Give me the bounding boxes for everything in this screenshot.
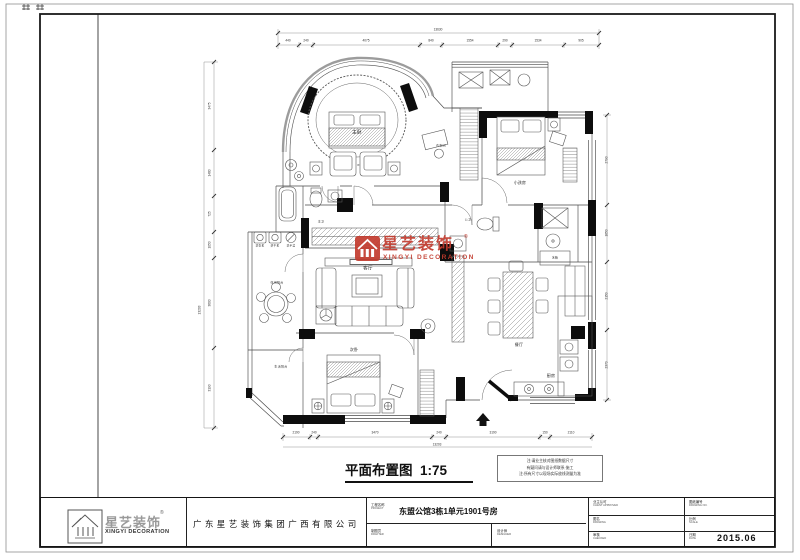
caption-title: 平面布置图: [345, 463, 413, 478]
field-sublabel: DRAWING NO.: [689, 504, 707, 507]
dim-label: 3600: [208, 299, 211, 306]
dim-label: 4075: [362, 39, 369, 42]
dim-label: 905: [578, 39, 583, 42]
field-sublabel: PROJECT: [371, 507, 385, 510]
field-sublabel: DRAFTER: [371, 533, 384, 536]
room-label-guest-bath: 公卫: [465, 219, 472, 222]
date-value: 2015.06: [717, 533, 757, 543]
dim-label: 1650: [605, 229, 608, 236]
title-block-divider: [366, 498, 367, 546]
room-label-kids: 小孩房: [514, 182, 526, 186]
dim-label: 3475: [208, 102, 211, 109]
room-label-kitchen: 厨房: [547, 374, 556, 378]
field-sublabel: SCALE: [689, 521, 698, 524]
drawing-sheet: 主卧 衣帽间 小孩房 主卫 公卫 客厅 餐厅 厨房 次卧 休闲阳台 生活阳台 洗…: [0, 0, 800, 560]
notes-box: 注:请业主核对图纸数据尺寸 有疑问请与设计师联系·施工 注:所有尺寸以现场实际放…: [497, 455, 603, 482]
field-sublabel: DESIGNER: [497, 533, 511, 536]
dim-total-top: 13630: [434, 28, 443, 31]
field-scale: 比例 SCALE: [689, 517, 698, 524]
dim-label: 3190: [208, 384, 211, 391]
field-drawing-no: 图纸编号 DRAWING NO.: [689, 500, 707, 507]
room-label-balcony-leisure: 休闲阳台: [270, 282, 283, 285]
dim-label: 1050: [208, 241, 211, 248]
dim-label: 3190: [489, 431, 496, 434]
dim-label: 2110: [568, 431, 575, 434]
dim-total-left: 13203: [198, 306, 201, 315]
dim-label: 2370: [605, 361, 608, 368]
room-label-living: 客厅: [363, 267, 373, 272]
title-block-divider: [588, 531, 774, 532]
field-client: 业主认可 CLIENT APPROVED: [593, 500, 618, 507]
title-block-divider: [588, 515, 774, 516]
field-sublabel: DRAWING: [593, 521, 606, 524]
note-line-2: 有疑问请与设计师联系·施工: [498, 465, 602, 472]
logo-text-en: XINGYI DECORATION: [105, 529, 170, 535]
field-checker: 审核 CHECKED: [593, 533, 606, 540]
field-sublabel: CHECKED: [593, 537, 606, 540]
dim-label: 240: [303, 39, 308, 42]
dim-label: 2190: [292, 431, 299, 434]
room-label-second: 次卧: [350, 348, 359, 352]
field-drawing-name: 图名 DRAWING: [593, 517, 606, 524]
dim-label: 240: [436, 431, 441, 434]
dim-label: 240: [311, 431, 316, 434]
label-washer: 洗衣机: [256, 246, 265, 249]
title-block-divider: [588, 498, 589, 546]
room-label-master: 主卧: [352, 131, 362, 136]
label-basin: 洗手盆: [287, 246, 296, 249]
dim-label: 1534: [534, 39, 541, 42]
dim-label: 2790: [605, 156, 608, 163]
label-dryer: 烘干机: [271, 246, 280, 249]
registered-mark-icon: ®: [464, 234, 468, 240]
field-project: 工程名称 PROJECT: [371, 503, 385, 510]
field-drafter: 制图员 DRAFTER: [371, 529, 384, 536]
drawing-caption: 平面布置图 1:75: [345, 459, 473, 483]
caption-scale: 1:75: [420, 463, 447, 478]
label-fridge: 冰箱: [552, 257, 558, 260]
dim-total-bottom: 13203: [433, 443, 442, 446]
company-name: 广东星艺装饰集团广西有限公司: [193, 518, 360, 530]
watermark-company-en: XINGYI DECORATION: [383, 255, 475, 262]
dim-label: 150: [542, 431, 547, 434]
dim-label: 1554: [466, 39, 473, 42]
title-block-divider: [186, 498, 187, 546]
dim-label: 725: [208, 211, 211, 216]
dim-label: 440: [285, 39, 290, 42]
room-label-master-bath: 主卫: [318, 221, 325, 224]
field-sublabel: DATE: [689, 537, 696, 540]
field-designer: 设计师 DESIGNER: [497, 529, 511, 536]
registered-mark-icon: ®: [160, 510, 164, 516]
caption-underline: [345, 481, 473, 482]
field-sublabel: CLIENT APPROVED: [593, 504, 618, 507]
note-line-1: 注:请业主核对图纸数据尺寸: [498, 458, 602, 465]
dim-label: 840: [428, 39, 433, 42]
dim-label: 2150: [605, 292, 608, 299]
room-label-cloak: 衣帽间: [436, 145, 446, 148]
title-block: 星艺装饰 ® XINGYI DECORATION 广东星艺装饰集团广西有限公司 …: [40, 497, 775, 547]
title-block-divider: [684, 498, 685, 546]
project-name-value: 东盟公馆3栋1单元1901号房: [399, 506, 498, 517]
dim-label: 290: [502, 39, 507, 42]
title-block-divider: [491, 523, 492, 546]
title-block-divider: [366, 523, 586, 524]
watermark-company-cn: 星艺装饰: [382, 237, 454, 253]
watermark-house-icon: [355, 236, 380, 261]
dim-label: 3470: [371, 431, 378, 434]
room-label-dining: 餐厅: [515, 343, 524, 347]
field-date: 日期 DATE: [689, 533, 696, 540]
room-label-balcony-life: 生活阳台: [274, 366, 287, 369]
note-line-3: 注:所有尺寸以现场实际放线测量为准: [498, 471, 602, 478]
dim-label: 1480: [208, 169, 211, 176]
